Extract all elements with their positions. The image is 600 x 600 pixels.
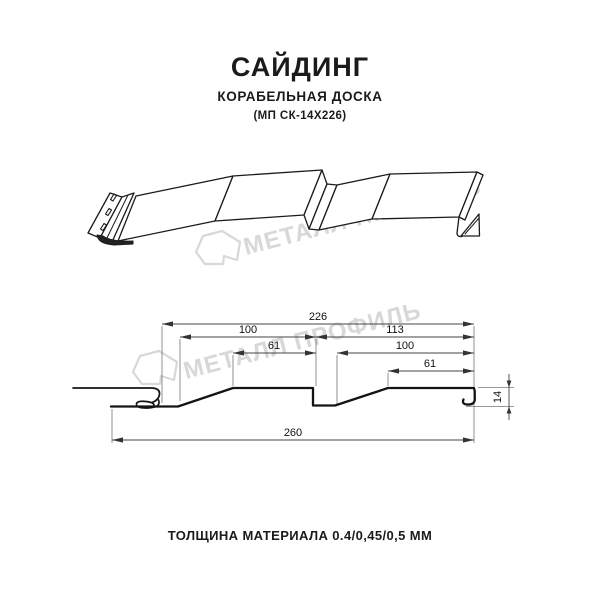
- metal-profile-logo-icon: [133, 351, 177, 384]
- dim-61-left: 61: [268, 340, 280, 352]
- watermark-text: МЕТАЛЛ ПРОФИЛЬ: [181, 297, 424, 385]
- dim-100-left: 100: [239, 324, 257, 336]
- dim-226: 226: [309, 311, 327, 323]
- dim-61-right: 61: [424, 358, 436, 370]
- material-thickness-note: ТОЛЩИНА МАТЕРИАЛА 0.4/0,45/0,5 ММ: [0, 528, 600, 543]
- dim-14: 14: [492, 391, 504, 403]
- adjacent-panel-edge: [73, 388, 160, 403]
- profile-outline: [73, 388, 475, 408]
- diagram-canvas: МЕТАЛЛ ПРОФИЛЬ МЕТАЛЛ ПРОФИЛЬ: [0, 0, 600, 600]
- dim-260: 260: [284, 427, 302, 439]
- metal-profile-logo-icon: [196, 231, 240, 264]
- board1-slant-face: [118, 176, 233, 241]
- dim-100-right: 100: [396, 340, 414, 352]
- dim-113: 113: [386, 324, 404, 336]
- main-profile-line: [111, 388, 475, 407]
